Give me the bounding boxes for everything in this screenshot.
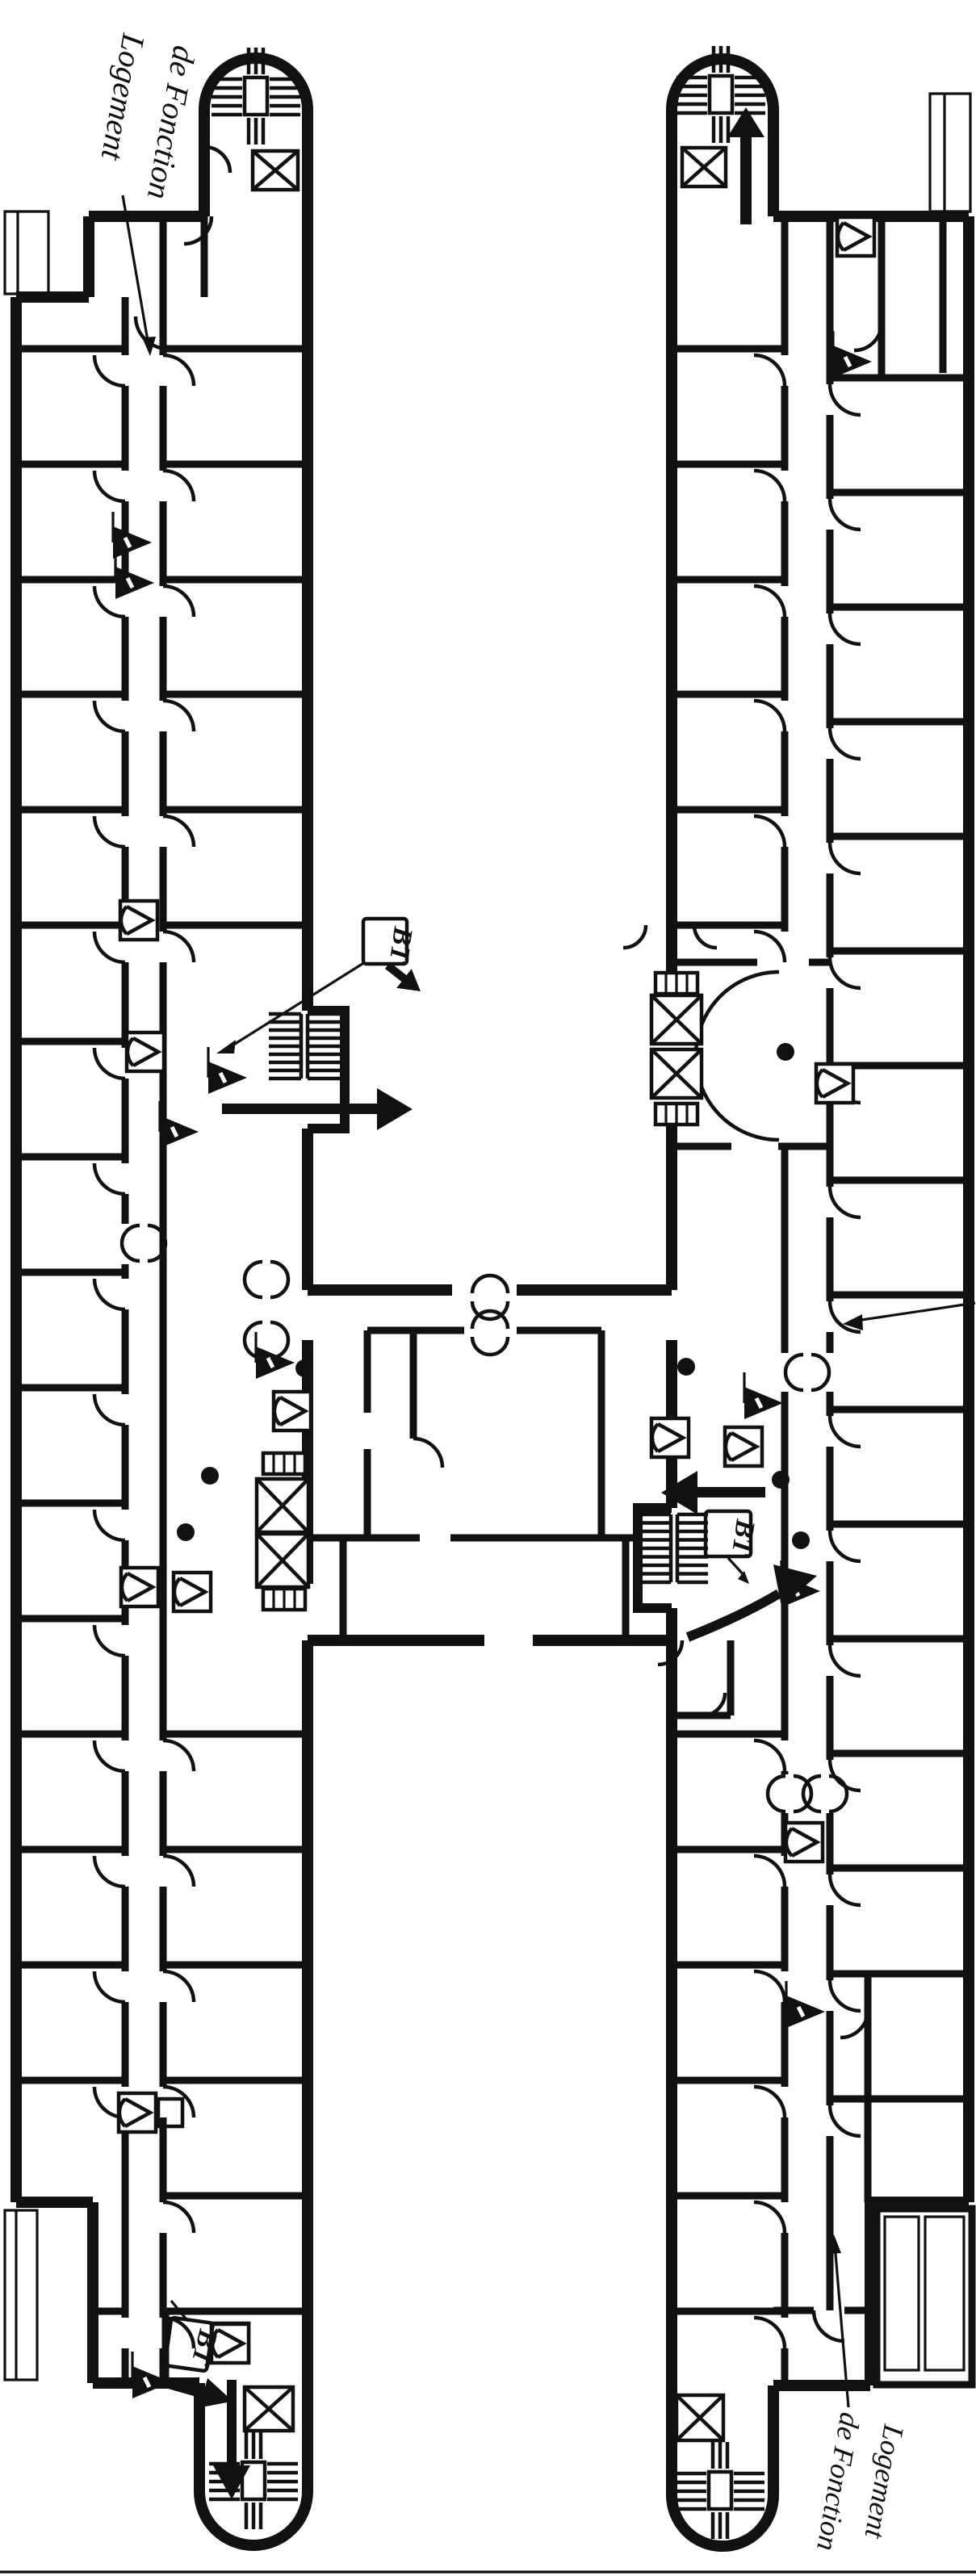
double-door-arcs bbox=[785, 1355, 829, 1390]
elevator-door-hatch bbox=[656, 1104, 697, 1125]
door-swing-arc-icon bbox=[754, 2202, 785, 2233]
stair-treads bbox=[640, 1514, 708, 1582]
stair-tread-hatch-icon bbox=[640, 1514, 708, 1582]
lobby-curved-double-door bbox=[696, 972, 779, 1140]
curved-exit-arrow-shaft bbox=[688, 1594, 779, 1637]
door-swing-arc-icon bbox=[830, 957, 861, 988]
top-right-balcony bbox=[930, 94, 970, 212]
interior-walls-layer bbox=[136, 147, 969, 2383]
door-swing-arc-icon bbox=[94, 1510, 125, 1540]
door-swing-arc-icon bbox=[94, 1279, 125, 1309]
door-swing-arc-icon bbox=[830, 2105, 861, 2136]
bt2-leader-arrow-icon bbox=[738, 1571, 749, 1584]
double-door-arcs bbox=[122, 1225, 165, 1261]
elevator-x-icon bbox=[676, 2395, 723, 2440]
triangle-body bbox=[160, 1116, 199, 1148]
central-bar-walls bbox=[308, 1290, 672, 1640]
column-dot-icon bbox=[677, 1358, 695, 1376]
door-swing-arc-icon bbox=[94, 1048, 125, 1079]
logement-top-label-line2: de Fonction bbox=[140, 43, 203, 202]
door-swing-arc-icon bbox=[830, 1531, 861, 1561]
door-swing-arc-icon bbox=[754, 2087, 785, 2117]
bt2-leader bbox=[728, 1558, 744, 1576]
door-swing-arc-icon bbox=[94, 701, 125, 731]
fire-extinguisher-triangle-icon bbox=[833, 331, 872, 378]
fire-extinguisher-triangle-icon bbox=[744, 1372, 783, 1419]
stair-tread-hatch-icon bbox=[676, 2442, 764, 2539]
door-swing-arc-icon bbox=[830, 499, 861, 530]
door-swing-arc-icon bbox=[830, 614, 861, 644]
stair-newel bbox=[709, 2472, 731, 2509]
door-swing-arc-icon bbox=[830, 843, 861, 873]
door-swing-arc-icon bbox=[163, 932, 194, 962]
door-swing-arc-icon bbox=[94, 1856, 125, 1887]
double-door-icon bbox=[785, 1355, 829, 1390]
door-swing-arc-icon bbox=[754, 816, 785, 847]
triangle-body bbox=[744, 1387, 783, 1419]
room-partitions-layer bbox=[16, 349, 969, 2311]
door-swing-arc-icon bbox=[163, 355, 194, 386]
triangle-body bbox=[208, 1062, 247, 1094]
elevator-x-icon bbox=[651, 1049, 702, 1098]
bottom-left-balcony bbox=[5, 2210, 37, 2380]
fire-hose-reel-icon bbox=[127, 1032, 164, 1071]
fire-hose-reel-icon bbox=[121, 1568, 158, 1606]
elevator-door-hatch bbox=[263, 1453, 305, 1474]
triangle-body bbox=[833, 346, 872, 378]
fire-hose-reel-icon bbox=[651, 1418, 689, 1457]
door-swing-arc-icon bbox=[754, 932, 785, 962]
stair-tread-hatch-icon bbox=[269, 1014, 340, 1079]
stair-newel bbox=[710, 76, 732, 113]
bt-label-center-right: BT bbox=[726, 1517, 760, 1557]
fire-hose-reel-icon bbox=[274, 1392, 311, 1430]
door-swing-arc-icon bbox=[94, 1394, 125, 1425]
logement-bottom-label-line1: Logement bbox=[858, 2422, 910, 2542]
triangle-body bbox=[113, 526, 152, 559]
elevator-x-icon bbox=[253, 151, 298, 190]
triangle-body bbox=[115, 567, 154, 599]
bt-label-upper-left: BT bbox=[383, 924, 418, 965]
door-swing-arc-icon bbox=[94, 1625, 125, 1656]
logement-bottom-label-line2: de Fonction bbox=[811, 2411, 866, 2553]
right-edge-leader bbox=[851, 1303, 975, 1322]
right-wing-outer-wall bbox=[672, 59, 969, 2546]
stair-newel bbox=[245, 77, 267, 115]
fire-extinguisher-triangle-icon bbox=[786, 1981, 825, 2028]
corridor-walls-layer bbox=[125, 216, 830, 2385]
elevator-x-icon bbox=[257, 1479, 308, 1532]
elevator-x-icon bbox=[682, 148, 726, 186]
door-swing-arc-icon bbox=[163, 471, 194, 501]
logement-top-label-line1: Logement bbox=[94, 30, 153, 163]
exit-arrow-up-icon bbox=[727, 107, 764, 224]
outer-walls-layer bbox=[16, 58, 969, 2546]
elevator-x-icon bbox=[257, 1534, 308, 1587]
door-swing-arc-icon bbox=[830, 1874, 861, 1905]
door-swing-arc-icon bbox=[163, 586, 194, 617]
door-swing-arc-icon bbox=[754, 471, 785, 501]
fire-hose-reel-icon bbox=[785, 1823, 823, 1862]
door-swing-arc-icon bbox=[163, 1856, 194, 1887]
triangle-body bbox=[786, 1996, 825, 2028]
symbols-layer bbox=[113, 46, 874, 2539]
door-swing-arc-icon bbox=[830, 1645, 861, 1676]
door-swing-arc-icon bbox=[754, 586, 785, 617]
door-swing-arc-icon bbox=[754, 355, 785, 386]
door-swing-arc-icon bbox=[830, 1416, 861, 1447]
fire-extinguisher-triangle-icon bbox=[208, 1047, 247, 1094]
door-swing-arc-icon bbox=[163, 816, 194, 847]
fire-hose-reel-icon bbox=[174, 1573, 211, 1611]
door-swing-arc-icon bbox=[94, 1971, 125, 2002]
double-door-arcs bbox=[245, 1262, 288, 1297]
door-swing-arc-icon bbox=[94, 816, 125, 847]
top-right-closet-walls bbox=[882, 216, 969, 379]
door-swing-arc-icon bbox=[94, 355, 125, 386]
bt1-leader-arrow-icon bbox=[216, 1040, 236, 1053]
door-swing-arc-icon bbox=[163, 2087, 194, 2117]
fire-hose-reel-icon bbox=[119, 2093, 156, 2132]
elevator-x-icon bbox=[651, 995, 702, 1044]
door-swing-arc-icon bbox=[830, 1980, 861, 2011]
bottom-right-terrace-inner bbox=[885, 2217, 964, 2370]
double-door-icon bbox=[122, 1225, 165, 1261]
door-swing-arc-icon bbox=[94, 1163, 125, 1194]
misc-door-swing-arcs bbox=[136, 147, 882, 2362]
door-swing-arc-icon bbox=[163, 1740, 194, 1771]
rooms-below-stair-walls bbox=[165, 1640, 731, 2383]
door-swing-arc-icon bbox=[754, 701, 785, 731]
door-swing-arc-icon bbox=[163, 701, 194, 731]
door-swing-arc-icon bbox=[94, 471, 125, 501]
fire-hose-reel-icon bbox=[816, 1064, 853, 1103]
central-room-block-walls bbox=[310, 1330, 638, 1640]
door-swing-arc-icon bbox=[754, 1856, 785, 1887]
door-swing-arc-icon bbox=[754, 1740, 785, 1771]
column-dot-icon bbox=[295, 1359, 313, 1377]
fire-hose-reel-icon bbox=[837, 217, 874, 256]
floor-plan-canvas: Logement de Fonction Logement de Fonctio… bbox=[0, 0, 976, 2576]
elevator-x-icon bbox=[245, 2387, 293, 2431]
door-swing-arc-icon bbox=[830, 384, 861, 415]
elevator-door-hatch bbox=[263, 1589, 305, 1610]
fire-extinguisher-triangle-icon bbox=[113, 512, 152, 559]
door-swing-arc-icon bbox=[94, 1740, 125, 1771]
column-dot-icon bbox=[777, 1043, 794, 1061]
stair-treads bbox=[269, 1014, 340, 1079]
top-left-balcony bbox=[5, 212, 48, 294]
column-dot-icon bbox=[772, 1471, 790, 1489]
floor-plan-page: Logement de Fonction Logement de Fonctio… bbox=[0, 0, 976, 2576]
fire-extinguisher-triangle-icon bbox=[115, 552, 154, 599]
column-dot-icon bbox=[201, 1467, 219, 1485]
elevator-door-hatch bbox=[656, 973, 697, 994]
door-swing-arc-icon bbox=[163, 1971, 194, 2002]
column-dot-icon bbox=[792, 1531, 810, 1549]
door-swing-arc-icon bbox=[830, 1187, 861, 1217]
column-dot-icon bbox=[177, 1523, 195, 1541]
door-swing-arc-icon bbox=[754, 1971, 785, 2002]
door-swing-arc-icon bbox=[163, 2202, 194, 2233]
fire-hose-reel-icon bbox=[120, 901, 157, 940]
door-swing-arc-icon bbox=[754, 2318, 785, 2348]
fire-hose-reel-icon bbox=[725, 1427, 762, 1466]
door-swing-arc-icon bbox=[830, 728, 861, 759]
double-door-icon bbox=[245, 1262, 288, 1297]
triangle-body bbox=[256, 1347, 295, 1379]
